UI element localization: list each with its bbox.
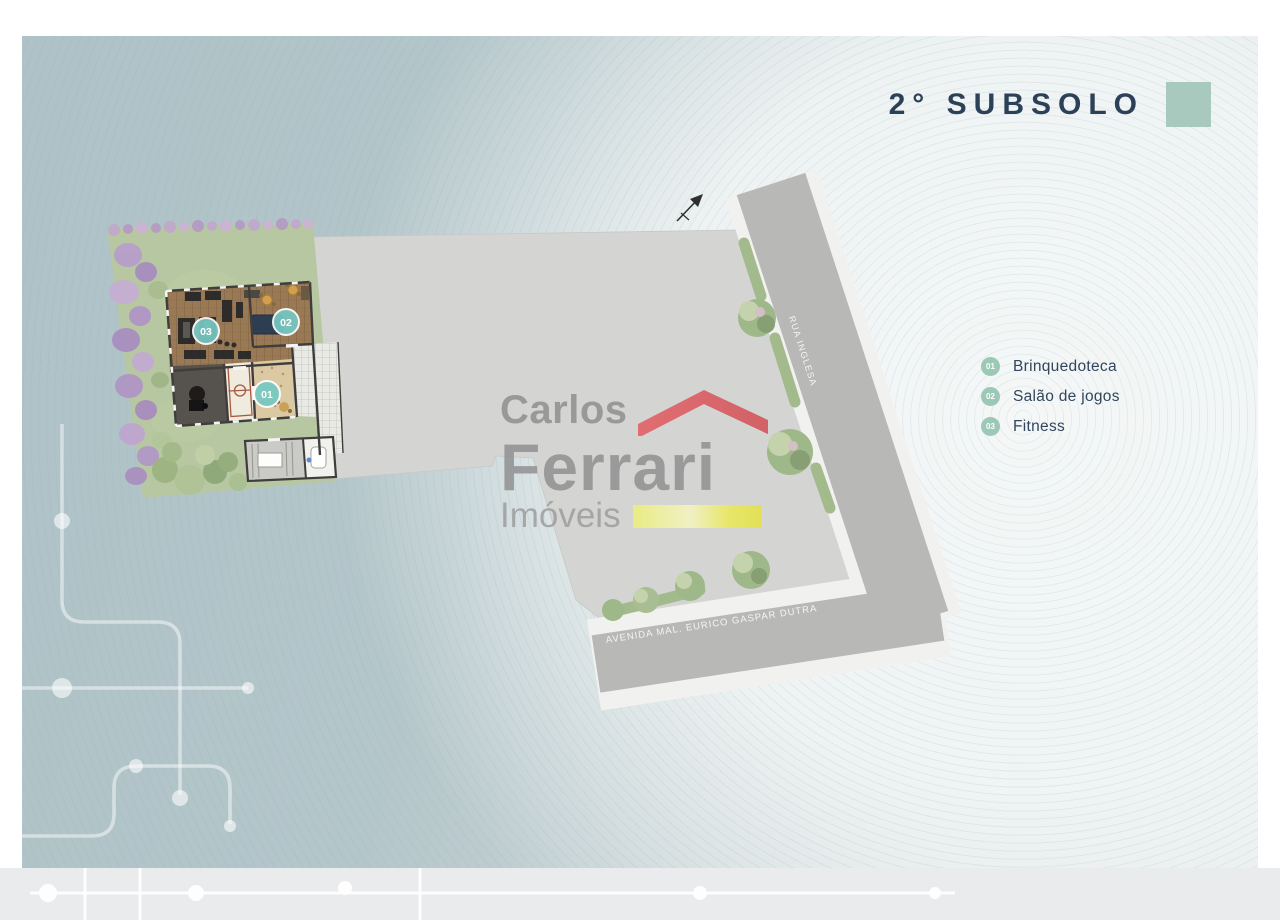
marker-03: 03 [193,318,219,344]
legend-item-fitness: 03 Fitness [981,417,1120,436]
legend-label: Fitness [1013,418,1065,436]
floor-color-swatch [1166,82,1211,127]
north-arrow-icon [677,194,703,221]
legend-badge: 02 [981,387,1000,406]
floor-plan-drawing: RUA INGLESA AVENIDA MAL. EURICO GASPAR D… [0,0,1280,920]
svg-text:01: 01 [261,389,273,401]
site-plan-page: RUA INGLESA AVENIDA MAL. EURICO GASPAR D… [0,0,1280,920]
legend-item-salao-de-jogos: 02 Salão de jogos [981,387,1120,406]
lower-rooms [245,437,336,481]
svg-text:03: 03 [200,326,212,338]
legend-label: Brinquedoteca [1013,358,1117,376]
legend-badge: 01 [981,357,1000,376]
marker-02: 02 [273,309,299,335]
marker-01: 01 [254,381,280,407]
floor-title-row: 2° SUBSOLO [889,82,1211,127]
legend-label: Salão de jogos [1013,388,1120,406]
page-title: 2° SUBSOLO [889,88,1144,122]
legend-item-brinquedoteca: 01 Brinquedoteca [981,357,1120,376]
legend-badge: 03 [981,417,1000,436]
svg-text:02: 02 [280,317,292,329]
mini-court [224,362,255,421]
legend: 01 Brinquedoteca 02 Salão de jogos 03 Fi… [981,357,1120,447]
circuit-decoration-bottom [30,868,955,920]
